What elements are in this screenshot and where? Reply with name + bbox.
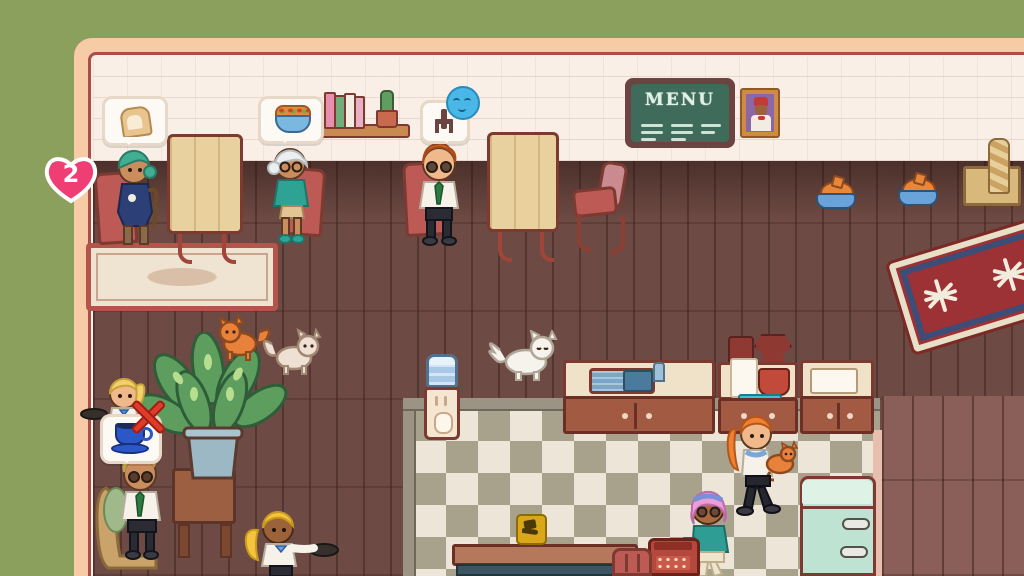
game-viewport: MENU [0,0,1024,576]
sink-bowl [623,370,653,392]
customer-white-hair[interactable] [258,142,320,246]
relaxed-blue-face-icon [446,86,480,120]
book [354,96,365,129]
water-jug [426,354,458,388]
bottom-red-chair[interactable] [612,548,652,576]
cooler-body [424,387,460,440]
thought-bubble-bread[interactable] [102,96,168,146]
fridge-handle [842,518,870,530]
menu-board[interactable]: MENU [625,78,735,148]
menu-title: MENU [631,84,729,110]
cabinet [563,396,715,434]
fridge-handle [840,546,868,558]
heart-badge[interactable]: 2 [42,152,100,206]
customer-orange-hair[interactable] [406,140,472,250]
table-leg [222,234,236,264]
bookshelf[interactable] [318,92,406,136]
cutting-board [810,368,858,394]
blocked-red-x-icon [128,398,166,436]
table-leg [498,232,512,262]
red-chair-empty[interactable] [573,162,629,258]
faucet [653,362,665,382]
customer-green-hair[interactable] [106,146,168,250]
water-cooler[interactable] [424,354,460,440]
coffee-pot [758,368,790,396]
chalk-lines [641,120,663,145]
cash-register[interactable] [648,538,700,576]
white-fluffy-cat[interactable] [486,330,558,382]
cabinet [800,396,874,434]
mint-fridge[interactable] [800,476,876,576]
portrait-face [755,105,767,115]
wood-table-left[interactable] [167,134,243,234]
bread-slice-icon [119,105,153,139]
cactus-pot [376,110,398,128]
waitress-bottom[interactable] [240,502,340,576]
wood-table-center[interactable] [487,132,559,232]
chalk-lines [671,120,693,145]
register-keys [656,556,690,570]
prep-counter[interactable] [800,360,874,434]
bottom-table[interactable] [452,544,638,576]
chalk-lines [701,120,721,138]
heart-badge-count: 2 [42,160,100,188]
coffee-machine-body [730,358,758,398]
portrait-bowtie [758,116,765,120]
thought-bubble-salad[interactable] [258,96,324,144]
scratching-post[interactable] [988,138,1010,194]
pet-bowl-1[interactable] [816,185,856,215]
kitchen-floor-edge [403,398,416,576]
customer-blonde-sunglasses[interactable] [88,448,188,573]
cream-cat[interactable] [262,328,322,378]
sink-counter[interactable] [563,360,715,434]
portrait-frame[interactable] [740,88,780,138]
pet-bowl-2[interactable] [898,182,938,212]
dark-plank-wall [882,396,1024,576]
table-leg [178,234,192,264]
hand-serving-icon[interactable] [516,514,547,545]
table-leg [540,232,554,262]
